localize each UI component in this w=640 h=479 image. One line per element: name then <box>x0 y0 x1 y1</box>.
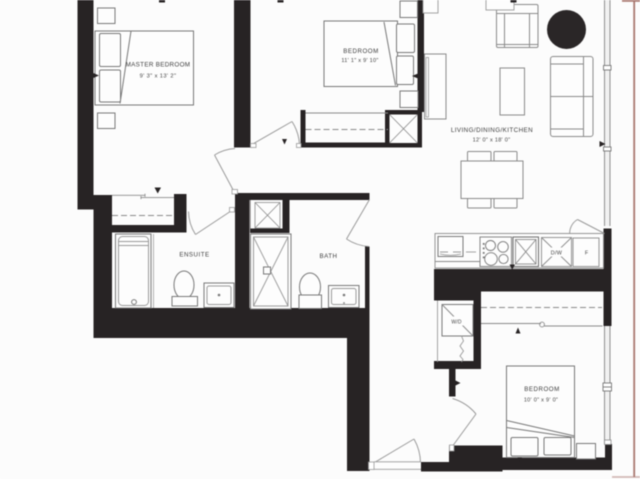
svg-text:BEDROOM: BEDROOM <box>524 386 559 393</box>
svg-text:BATH: BATH <box>319 253 337 260</box>
svg-text:12' 0" x 18' 0": 12' 0" x 18' 0" <box>473 138 511 144</box>
svg-text:D/W: D/W <box>551 251 563 257</box>
svg-text:11' 1" x 9' 10": 11' 1" x 9' 10" <box>341 58 378 64</box>
svg-text:W/D: W/D <box>451 320 462 326</box>
svg-text:10' 0" x 9' 0": 10' 0" x 9' 0" <box>524 398 558 404</box>
svg-text:LIVING/DINING/KITCHEN: LIVING/DINING/KITCHEN <box>451 127 533 134</box>
svg-text:9' 3" x 13' 2": 9' 3" x 13' 2" <box>140 74 177 80</box>
svg-text:ENSUITE: ENSUITE <box>179 252 209 259</box>
svg-text:BEDROOM: BEDROOM <box>343 48 378 55</box>
svg-text:MASTER BEDROOM: MASTER BEDROOM <box>126 62 191 69</box>
